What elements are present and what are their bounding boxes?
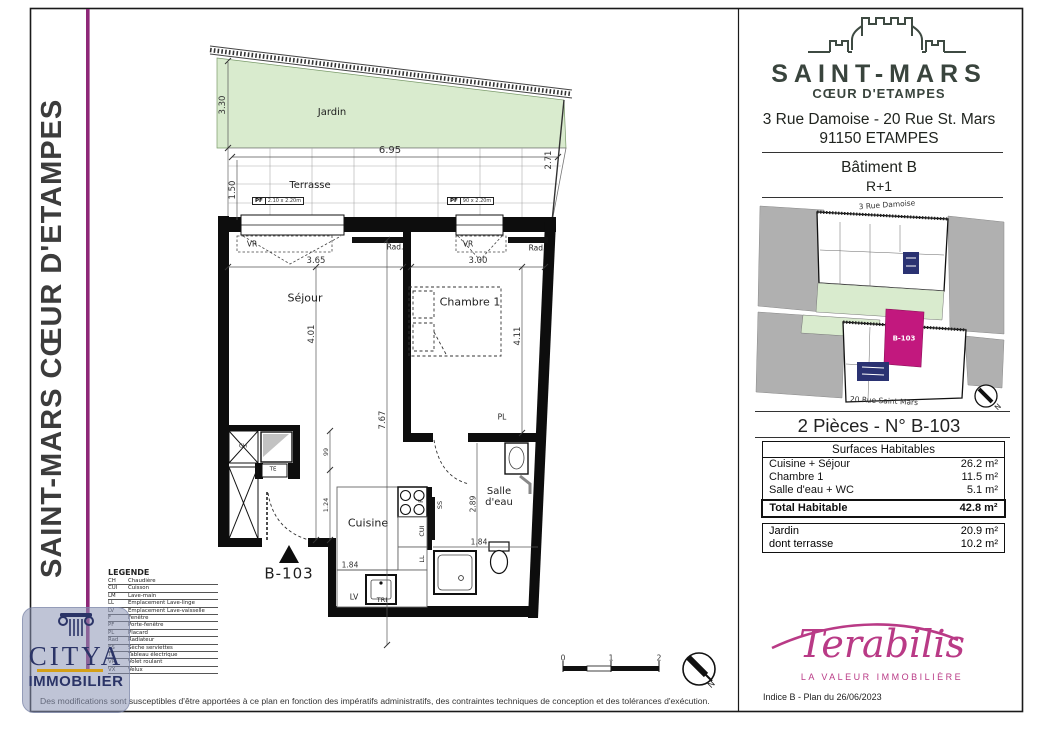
- scale-2: 2: [657, 654, 662, 662]
- project-name: SAINT-MARS: [745, 60, 1013, 89]
- header-rule-1: [762, 152, 1003, 153]
- legend-row: CHChaudière: [108, 578, 218, 585]
- pl-label: PL: [498, 413, 507, 421]
- dim-4-11: 4.11: [514, 327, 523, 346]
- pf-abbr: PF: [447, 197, 461, 205]
- banner-accent-line: [86, 9, 90, 669]
- row-value: 11.5 m²: [962, 471, 998, 484]
- legend-label: Tableau électrique: [128, 652, 177, 658]
- dim-1-84-cuisine: 1.84: [342, 561, 359, 569]
- stair-core-south: [857, 362, 889, 381]
- citya-name: CITYA: [23, 643, 129, 669]
- site-unit-label: B-103: [893, 336, 916, 343]
- kitchen-fixtures: [337, 487, 435, 607]
- lv-label: LV: [350, 593, 359, 601]
- pf-size: 2.10 x 2.20m: [266, 197, 304, 205]
- scale-0: 0: [561, 654, 566, 662]
- rad-label-left: Rad.: [387, 243, 404, 251]
- row-label: Cuisine + Séjour: [769, 458, 850, 471]
- dim-3-30: 3.30: [219, 96, 228, 115]
- room-label-cuisine: Cuisine: [348, 518, 388, 529]
- total-label: Total Habitable: [769, 502, 847, 515]
- table-row: Jardin 20.9 m²: [763, 525, 1004, 538]
- row-label: dont terrasse: [769, 538, 833, 551]
- dim-7-67: 7.67: [379, 411, 388, 430]
- pf-tag-left: PF 2.10 x 2.20m: [252, 197, 304, 205]
- dim-3-00: 3.00: [469, 257, 488, 266]
- towel-radiator: [429, 497, 435, 540]
- total-row: Total Habitable 42.8 m²: [761, 499, 1005, 518]
- plan-sheet-page: SAINT-MARS CŒUR D'ETAMPES Jardin Terrass…: [0, 0, 1038, 734]
- total-value: 42.8 m²: [960, 502, 998, 515]
- legend-abbr: LL: [108, 600, 128, 606]
- pf-tag-right: PF 90 x 2.20m: [447, 197, 494, 205]
- pf-size: 90 x 2.20m: [461, 197, 495, 205]
- legend-abbr: CH: [108, 578, 128, 584]
- table-row: Chambre 1 11.5 m²: [763, 471, 1004, 484]
- dim-3-65: 3.65: [307, 257, 326, 266]
- rad-label-right: Rad.: [529, 244, 546, 252]
- row-label: Chambre 1: [769, 471, 823, 484]
- unit-number-label: B-103: [264, 567, 313, 582]
- radiators: [352, 237, 548, 243]
- vr-label-left: VR: [247, 240, 257, 248]
- terabilis-logo: Terabilis: [762, 624, 1002, 664]
- bathroom-fixtures: [434, 443, 530, 594]
- stair-core-north: [903, 252, 919, 274]
- address-line-1: 3 Rue Damoise - 20 Rue St. Mars: [745, 111, 1013, 129]
- building-north: [817, 212, 948, 291]
- f-label: F: [418, 499, 425, 503]
- row-value: 10.2 m²: [961, 538, 998, 551]
- room-label-terrasse: Terrasse: [289, 181, 330, 191]
- entry-door: [267, 492, 309, 563]
- unit-title-rule: [755, 437, 1010, 438]
- legend-label: Placard: [128, 630, 148, 636]
- scale-bar: [563, 661, 659, 672]
- row-label: Jardin: [769, 525, 799, 538]
- legend-title: LEGENDE: [108, 568, 218, 577]
- cui-label: CUI: [419, 525, 426, 536]
- project-banner-title: SAINT-MARS CŒUR D'ETAMPES: [36, 88, 80, 588]
- address-line-2: 91150 ETAMPES: [745, 130, 1013, 148]
- site-rule: [755, 411, 1010, 412]
- dim-1-84-sde: 1.84: [471, 538, 488, 546]
- floor-label: R+1: [745, 178, 1013, 194]
- legend-label: Chaudière: [128, 578, 156, 584]
- legend-label: Emplacement Lave-vaisselle: [128, 608, 205, 614]
- dim-2-89: 2.89: [469, 496, 477, 513]
- project-subtitle: CŒUR D'ETAMPES: [745, 86, 1013, 101]
- legend-label: Porte-fenêtre: [128, 622, 163, 628]
- room-label-sejour: Séjour: [287, 293, 322, 304]
- room-label-jardin: Jardin: [318, 108, 346, 118]
- row-value: 20.9 m²: [961, 525, 998, 538]
- legend-label: Volet roulant: [128, 659, 162, 665]
- citya-subtitle: IMMOBILIER: [23, 673, 129, 690]
- row-value: 26.2 m²: [961, 458, 998, 471]
- row-value: 5.1 m²: [967, 484, 998, 497]
- legend-label: Velux: [128, 667, 143, 673]
- surfaces-table: Surfaces Habitables Cuisine + Séjour 26.…: [762, 441, 1005, 517]
- garden-area: [210, 46, 572, 148]
- dim-1-24: 1.24: [323, 498, 330, 512]
- table-row: Cuisine + Séjour 26.2 m²: [763, 458, 1004, 471]
- dim-6-95: 6.95: [379, 146, 401, 156]
- surfaces-header: Surfaces Habitables: [763, 442, 1004, 458]
- row-label: Salle d'eau + WC: [769, 484, 854, 497]
- citya-column-icon: [46, 612, 106, 638]
- legend-row: LMLave-main: [108, 593, 218, 600]
- legend-abbr: LM: [108, 593, 128, 599]
- scale-1: 1: [609, 654, 614, 662]
- te-label: TE: [270, 467, 277, 473]
- legend-label: Sèche serviettes: [128, 645, 173, 651]
- dim-1-50: 1.50: [229, 181, 238, 200]
- table-row: dont terrasse 10.2 m²: [763, 538, 1004, 551]
- ss-label: SS: [437, 501, 444, 509]
- unit-title: 2 Pièces - N° B-103: [745, 415, 1013, 437]
- legend-label: Emplacement Lave-linge: [128, 600, 195, 606]
- room-label-chambre: Chambre 1: [440, 297, 501, 308]
- footer-disclaimer: Des modifications sont susceptibles d'êt…: [40, 696, 732, 706]
- outdoor-table: Jardin 20.9 m² dont terrasse 10.2 m²: [762, 523, 1005, 553]
- ch-label: CH: [239, 444, 247, 450]
- entry-marker-triangle: [279, 545, 299, 563]
- revision-note: Indice B - Plan du 26/06/2023: [763, 692, 882, 702]
- citya-logo: CITYA IMMOBILIER: [22, 607, 130, 713]
- legend-label: Cuisson: [128, 585, 149, 591]
- pf-abbr: PF: [252, 197, 266, 205]
- room-label-salle-deau: Salle d'eau: [478, 486, 520, 508]
- header-rule-2: [762, 197, 1003, 198]
- legend-row: LLEmplacement Lave-linge: [108, 600, 218, 607]
- building-label: Bâtiment B: [745, 159, 1013, 177]
- legend-label: Lave-main: [128, 593, 156, 599]
- legend-abbr: CUI: [108, 585, 128, 591]
- table-row: Salle d'eau + WC 5.1 m²: [763, 484, 1004, 497]
- bathroom-door-arc: [434, 440, 469, 484]
- vr-label-right: VR: [463, 240, 473, 248]
- legend-label: Radiateur: [128, 637, 154, 643]
- site-plan-drawing: [756, 206, 1004, 407]
- tri-label: TRI: [377, 597, 387, 604]
- dim-4-01: 4.01: [308, 325, 317, 344]
- ll-label: LL: [419, 555, 426, 562]
- terabilis-tagline: LA VALEUR IMMOBILIÈRE: [762, 672, 1002, 682]
- legend-row: CUICuisson: [108, 585, 218, 592]
- castle-icon: [808, 18, 966, 52]
- legend-label: Fenêtre: [128, 615, 148, 621]
- dim-2-71: 2.71: [545, 151, 554, 170]
- dim-99: 99: [323, 448, 330, 456]
